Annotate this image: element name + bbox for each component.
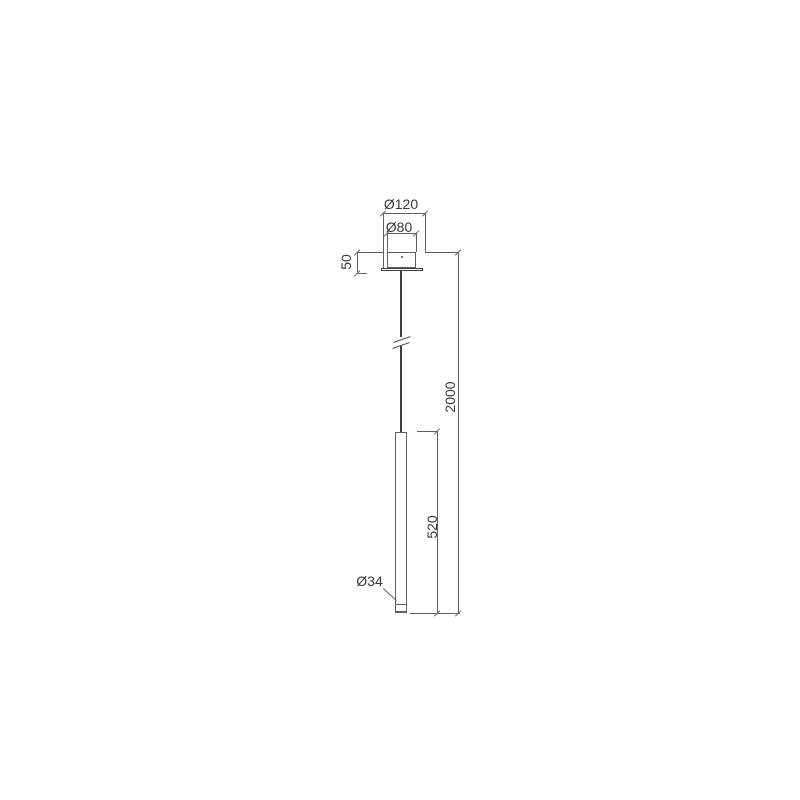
dim-line-suspension-total xyxy=(458,252,459,613)
dim-label-canopy-diameter: Ø120 xyxy=(384,197,418,211)
extension-line-canopy-bottom xyxy=(357,273,368,274)
extension-line-total-top xyxy=(425,252,458,253)
extension-line-body-left xyxy=(387,233,388,252)
canopy-body xyxy=(387,252,416,268)
dim-line-canopy-inner-diameter xyxy=(387,233,416,234)
extension-line-bottom-shared xyxy=(410,613,459,614)
dim-label-canopy-height: 50 xyxy=(339,254,353,270)
technical-drawing-canvas: Ø120 Ø80 50 Ø34 520 2000 xyxy=(0,0,800,800)
extension-line-plate-left xyxy=(383,213,384,268)
extension-line-body-right xyxy=(416,233,417,252)
extension-line-plate-right xyxy=(425,213,426,252)
suspension-cable-lower xyxy=(400,346,402,432)
extension-line-canopy-top xyxy=(357,252,383,253)
suspension-cable-upper xyxy=(400,271,402,337)
tube-end-cap-line-2 xyxy=(396,611,407,612)
dim-label-tube-diameter: Ø34 xyxy=(356,574,382,588)
dim-line-canopy-diameter xyxy=(383,213,425,214)
tube-end-cap-line-1 xyxy=(396,604,407,605)
dim-line-canopy-height xyxy=(357,252,358,272)
pendant-tube xyxy=(395,432,407,614)
dim-line-tube-length xyxy=(437,431,438,612)
canopy-screw-dot xyxy=(401,256,403,258)
dim-label-suspension-total: 2000 xyxy=(443,381,457,412)
extension-line-tube-top xyxy=(417,431,438,432)
